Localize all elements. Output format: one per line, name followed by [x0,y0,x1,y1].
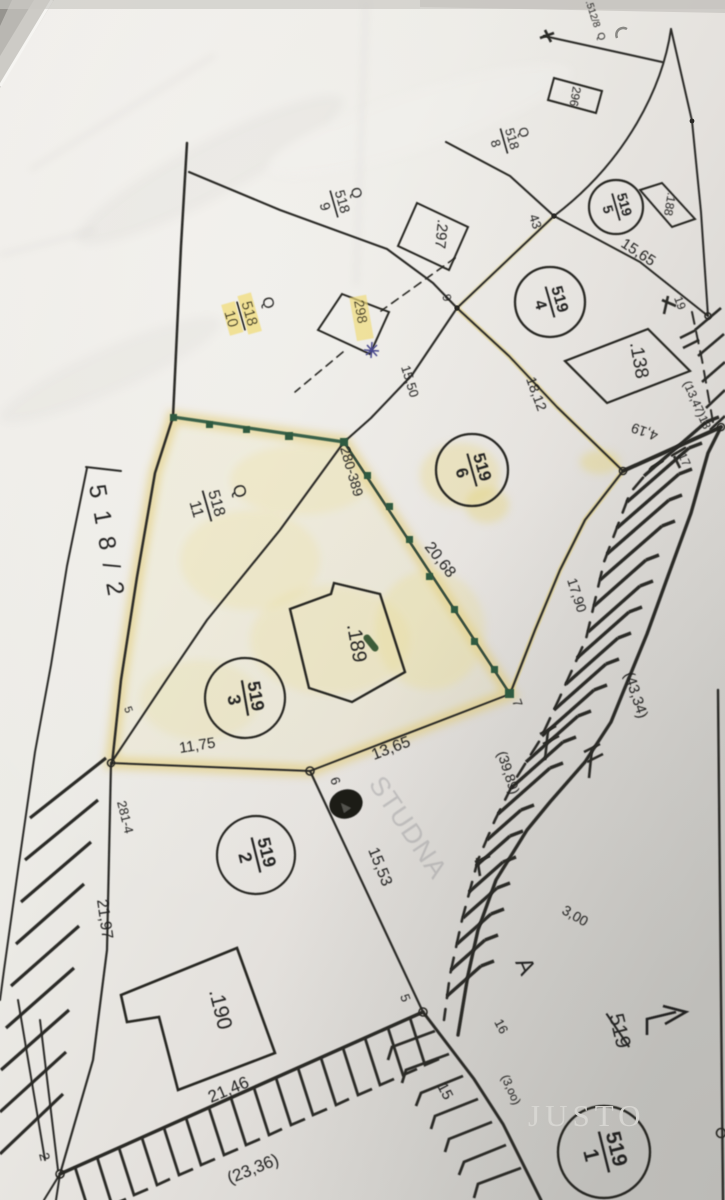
svg-text:.297: .297 [431,219,451,250]
svg-text:JUSTO: JUSTO [528,1098,645,1133]
